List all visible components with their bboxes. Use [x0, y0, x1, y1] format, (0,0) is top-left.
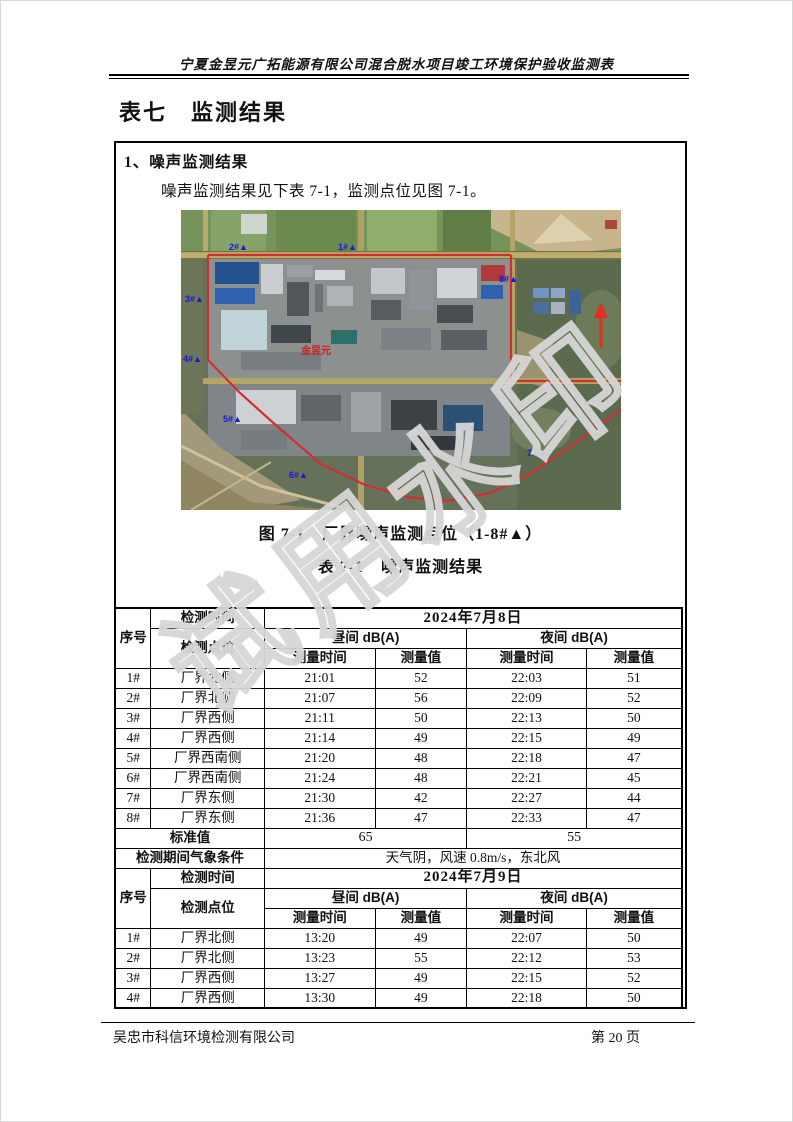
scrub-strip — [181, 259, 203, 414]
col-header-time: 检测时间 — [151, 608, 265, 628]
building — [261, 264, 283, 294]
building — [371, 300, 401, 320]
table-cell: 49 — [375, 988, 467, 1008]
blue-roof — [481, 285, 503, 299]
table-cell: 50 — [586, 928, 682, 948]
table-cell: 52 — [586, 688, 682, 708]
figure-caption: 图 7-1 厂界噪声监测点位（1-8#▲） — [116, 520, 685, 544]
noise-marker: 5#▲ — [223, 414, 242, 424]
building — [409, 270, 433, 310]
col-header-measure-time: 测量时间 — [467, 648, 587, 668]
col-header-seq: 序号 — [115, 608, 151, 668]
pond — [551, 288, 565, 298]
footer-company: 吴忠市科信环境检测有限公司 — [113, 1027, 295, 1047]
table-cell: 53 — [586, 948, 682, 968]
table-header-day2: 序号 检测时间 2024年7月9日 检测点位 昼间 dB(A) 夜间 dB(A)… — [115, 868, 682, 928]
noise-marker: 3#▲ — [185, 294, 204, 304]
col-header-measure-value: 测量值 — [375, 648, 467, 668]
header-title: 宁夏金昱元广拓能源有限公司混合脱水项目竣工环境保护验收监测表 — [1, 53, 792, 73]
table-row: 4#厂界西侧21:144922:1549 — [115, 728, 682, 748]
table-cell: 45 — [586, 768, 682, 788]
col-header-daytime: 昼间 dB(A) — [265, 888, 467, 908]
table-cell: 49 — [375, 928, 467, 948]
table-cell: 49 — [375, 968, 467, 988]
table-cell: 22:09 — [467, 688, 587, 708]
field-patch — [443, 210, 491, 254]
col-header-measure-value: 测量值 — [586, 648, 682, 668]
table-cell: 厂界西侧 — [151, 728, 265, 748]
table-cell: 6# — [115, 768, 151, 788]
field-patch — [367, 210, 437, 254]
map-company-label: 金昱元 — [300, 344, 331, 357]
content-frame: 1、噪声监测结果 噪声监测结果见下表 7-1，监测点位见图 7-1。 — [114, 141, 687, 1009]
table-row: 2#厂界北侧13:235522:1253 — [115, 948, 682, 968]
col-header-point: 检测点位 — [151, 888, 265, 928]
table-cell: 1# — [115, 668, 151, 688]
table-cell: 22:33 — [467, 808, 587, 828]
intro-paragraph: 噪声监测结果见下表 7-1，监测点位见图 7-1。 — [130, 179, 671, 201]
coal-pile — [411, 436, 461, 450]
page-title: 表七 监测结果 — [119, 95, 287, 127]
table-cell: 55 — [375, 948, 467, 968]
table-cell: 21:07 — [265, 688, 376, 708]
col-header-point: 检测点位 — [151, 628, 265, 668]
table-cell: 厂界北侧 — [151, 668, 265, 688]
table-cell: 22:15 — [467, 968, 587, 988]
pond — [533, 288, 549, 298]
table-cell: 22:13 — [467, 708, 587, 728]
table-cell: 21:20 — [265, 748, 376, 768]
table-row: 1#厂界北侧13:204922:0750 — [115, 928, 682, 948]
scrub-patch — [511, 408, 571, 452]
col-header-seq: 序号 — [115, 868, 151, 928]
table-cell: 厂界西南侧 — [151, 748, 265, 768]
col-header-measure-value: 测量值 — [586, 908, 682, 928]
table-row: 2#厂界北侧21:075622:0952 — [115, 688, 682, 708]
table-row: 4#厂界西侧13:304922:1850 — [115, 988, 682, 1008]
table-cell: 厂界西侧 — [151, 968, 265, 988]
table-cell: 56 — [375, 688, 467, 708]
building — [315, 284, 323, 312]
table-cell: 21:11 — [265, 708, 376, 728]
table-row: 3#厂界西侧13:274922:1552 — [115, 968, 682, 988]
table-cell: 4# — [115, 728, 151, 748]
table-row: 6#厂界西南侧21:244822:2145 — [115, 768, 682, 788]
building — [441, 330, 487, 350]
table-body-day1: 1#厂界北侧21:015222:03512#厂界北侧21:075622:0952… — [115, 668, 682, 828]
table-cell: 厂界西侧 — [151, 708, 265, 728]
table-cell: 厂界东侧 — [151, 808, 265, 828]
table-cell: 21:36 — [265, 808, 376, 828]
table-cell: 22:07 — [467, 928, 587, 948]
noise-marker: 1#▲ — [338, 242, 357, 252]
table-cell: 22:18 — [467, 988, 587, 1008]
table-cell: 厂界西侧 — [151, 988, 265, 1008]
blue-roof — [215, 288, 255, 304]
road-vertical-left — [203, 210, 208, 258]
table-cell: 22:21 — [467, 768, 587, 788]
footer-page-number: 第 20 页 — [591, 1027, 640, 1047]
red-roof-building — [605, 220, 617, 229]
table-cell: 13:27 — [265, 968, 376, 988]
table-cell: 47 — [586, 808, 682, 828]
table-header-day1: 序号 检测时间 2024年7月8日 检测点位 昼间 dB(A) 夜间 dB(A)… — [115, 608, 682, 668]
noise-marker: 7#▲ — [527, 448, 546, 458]
building — [437, 305, 473, 323]
table-cell: 52 — [375, 668, 467, 688]
col-header-measure-time: 测量时间 — [265, 648, 376, 668]
table-cell: 1# — [115, 928, 151, 948]
large-shed — [236, 390, 296, 424]
large-shed — [437, 268, 477, 298]
table-row: 5#厂界西南侧21:204822:1847 — [115, 748, 682, 768]
building — [241, 430, 287, 450]
table-row: 7#厂界东侧21:304222:2744 — [115, 788, 682, 808]
table-cell: 22:18 — [467, 748, 587, 768]
table-cell: 48 — [375, 748, 467, 768]
table-cell: 50 — [375, 708, 467, 728]
pond — [569, 290, 581, 314]
noise-results-table: 序号 检测时间 2024年7月8日 检测点位 昼间 dB(A) 夜间 dB(A)… — [114, 607, 683, 1009]
table-cell: 13:20 — [265, 928, 376, 948]
table-cell: 49 — [586, 728, 682, 748]
table-cell: 49 — [375, 728, 467, 748]
table-cell: 8# — [115, 808, 151, 828]
standard-day-value: 65 — [265, 828, 467, 848]
table-row: 1#厂界北侧21:015222:0351 — [115, 668, 682, 688]
building — [327, 286, 353, 306]
col-header-measure-time: 测量时间 — [265, 908, 376, 928]
farm-building — [241, 214, 267, 234]
table-cell: 3# — [115, 968, 151, 988]
noise-marker: 6#▲ — [289, 470, 308, 480]
water-pond — [331, 330, 357, 344]
table-cell: 21:14 — [265, 728, 376, 748]
table-cell: 47 — [586, 748, 682, 768]
site-map-figure: 金昱元 2#▲ 1#▲ 8#▲ 3#▲ 4#▲ 5#▲ 6#▲ 7#▲ — [181, 210, 621, 510]
building — [315, 270, 345, 280]
table-cell: 13:30 — [265, 988, 376, 1008]
table-body-day2: 1#厂界北侧13:204922:07502#厂界北侧13:235522:1253… — [115, 928, 682, 1008]
building — [287, 282, 309, 316]
noise-marker: 4#▲ — [183, 354, 202, 364]
table-cell: 5# — [115, 748, 151, 768]
table-cell: 厂界东侧 — [151, 788, 265, 808]
col-header-nighttime: 夜间 dB(A) — [467, 628, 682, 648]
building — [371, 268, 405, 294]
noise-marker: 8#▲ — [499, 274, 518, 284]
monitor-date-2: 2024年7月9日 — [265, 868, 683, 888]
weather-value: 天气阴，风速 0.8m/s，东北风 — [265, 848, 683, 868]
table-cell: 42 — [375, 788, 467, 808]
building — [351, 392, 381, 432]
table-cell: 48 — [375, 768, 467, 788]
table-standard-weather: 标准值 65 55 检测期间气象条件 天气阴，风速 0.8m/s，东北风 — [115, 828, 682, 868]
table-cell: 4# — [115, 988, 151, 1008]
table-cell: 厂界北侧 — [151, 928, 265, 948]
large-shed — [221, 310, 267, 350]
blue-roof — [215, 262, 259, 284]
standard-label: 标准值 — [115, 828, 265, 848]
table-cell: 21:24 — [265, 768, 376, 788]
coal-pile — [391, 400, 437, 430]
table-cell: 51 — [586, 668, 682, 688]
table-cell: 7# — [115, 788, 151, 808]
table-cell: 2# — [115, 948, 151, 968]
table-row: 3#厂界西侧21:115022:1350 — [115, 708, 682, 728]
col-header-measure-value: 测量值 — [375, 908, 467, 928]
section-heading: 1、噪声监测结果 — [124, 150, 685, 172]
col-header-measure-time: 测量时间 — [467, 908, 587, 928]
standard-night-value: 55 — [467, 828, 682, 848]
table-caption: 表 7-1 噪声监测结果 — [116, 553, 685, 577]
document-page: 宁夏金昱元广拓能源有限公司混合脱水项目竣工环境保护验收监测表 表七 监测结果 1… — [0, 0, 793, 1122]
building — [271, 325, 311, 343]
satellite-map: 金昱元 2#▲ 1#▲ 8#▲ 3#▲ 4#▲ 5#▲ 6#▲ 7#▲ — [181, 210, 621, 510]
pond — [533, 302, 549, 314]
monitor-date-1: 2024年7月8日 — [265, 608, 683, 628]
noise-marker: 2#▲ — [229, 242, 248, 252]
building — [287, 265, 313, 277]
table-cell: 47 — [375, 808, 467, 828]
table-cell: 50 — [586, 708, 682, 728]
table-cell: 21:30 — [265, 788, 376, 808]
col-header-daytime: 昼间 dB(A) — [265, 628, 467, 648]
table-cell: 52 — [586, 968, 682, 988]
table-cell: 22:15 — [467, 728, 587, 748]
table-cell: 22:12 — [467, 948, 587, 968]
table-cell: 22:27 — [467, 788, 587, 808]
table-cell: 厂界西南侧 — [151, 768, 265, 788]
col-header-nighttime: 夜间 dB(A) — [467, 888, 682, 908]
table-cell: 厂界北侧 — [151, 688, 265, 708]
blue-pile — [443, 405, 483, 431]
table-cell: 21:01 — [265, 668, 376, 688]
table-cell: 22:03 — [467, 668, 587, 688]
table-cell: 2# — [115, 688, 151, 708]
table-cell: 3# — [115, 708, 151, 728]
table-cell: 13:23 — [265, 948, 376, 968]
building — [381, 328, 431, 350]
table-cell: 50 — [586, 988, 682, 1008]
table-row: 8#厂界东侧21:364722:3347 — [115, 808, 682, 828]
header-rule — [109, 74, 689, 79]
table-cell: 厂界北侧 — [151, 948, 265, 968]
weather-label: 检测期间气象条件 — [115, 848, 265, 868]
footer-rule — [101, 1022, 695, 1023]
building — [301, 395, 341, 421]
pond — [551, 302, 565, 314]
col-header-time: 检测时间 — [151, 868, 265, 888]
table-cell: 44 — [586, 788, 682, 808]
